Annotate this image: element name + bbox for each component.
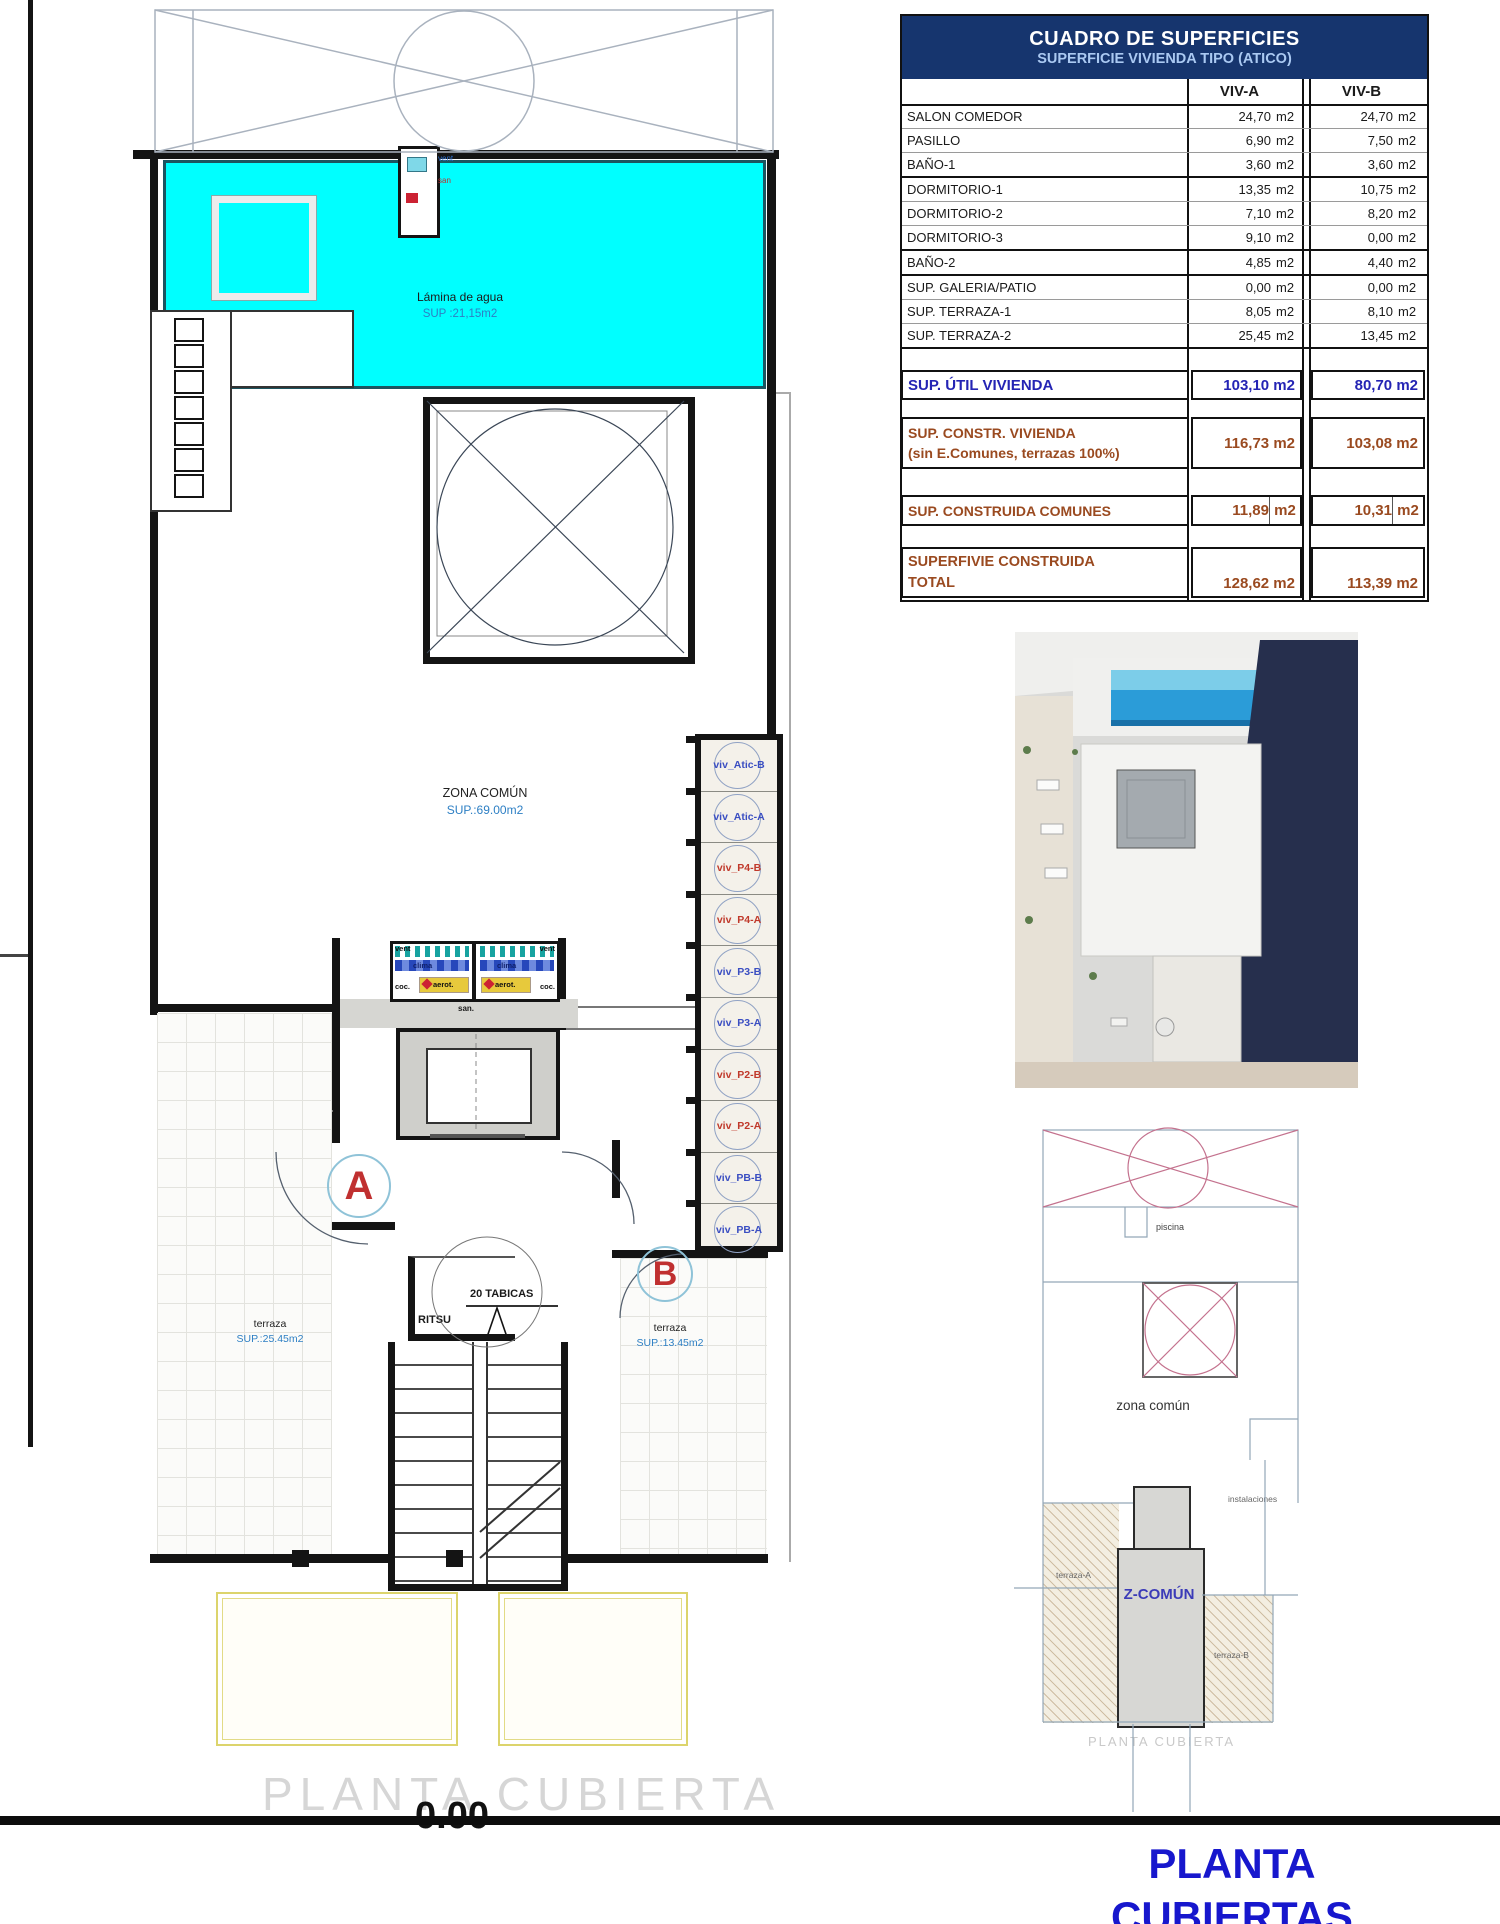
comunes-value-b: 10,31 [1313, 502, 1392, 519]
table-row-value-a: 0,00m2 [1187, 280, 1302, 295]
table-row-value-a: 4,85m2 [1187, 255, 1302, 270]
stair-stringer [472, 1342, 488, 1584]
constr-label-cell: SUP. CONSTR. VIVIENDA (sin E.Comunes, te… [901, 417, 1189, 469]
key-instalaciones-label: instalaciones [1228, 1494, 1277, 1505]
table-row: DORMITORIO-27,10m28,20m2 [902, 202, 1427, 226]
balcony-right [498, 1592, 688, 1746]
table-row-value-b: 13,45m2 [1309, 328, 1424, 343]
ritsu-label: RITSU [418, 1314, 451, 1328]
marker-a: A [327, 1154, 391, 1218]
louver [174, 422, 204, 446]
tabicas-label: 20 TABICAS [470, 1288, 533, 1302]
cell-unit: m2 [1271, 304, 1302, 319]
cell-number: 0,00 [1309, 230, 1393, 245]
louver [174, 396, 204, 420]
drawing-sheet: vent san Lámina de agua SUP :21,15m2 ZON… [0, 0, 1500, 1924]
balcony-left [216, 1592, 458, 1746]
util-value-b: 80,70 m2 [1311, 370, 1425, 400]
comunes-value-b-cell: 10,31 m2 [1311, 495, 1425, 526]
elevator-door [430, 1134, 525, 1138]
riser-stack: viv_Atic-Bviv_Atic-Aviv_P4-Bviv_P4-Aviv_… [695, 734, 783, 1252]
column-viv-b: VIV-B [1304, 79, 1419, 104]
wall-segment [612, 1140, 620, 1198]
comunes-unit-b: m2 [1392, 497, 1423, 524]
riser-cell: viv_P2-B [701, 1049, 777, 1101]
riser-label: viv_P3-A [701, 1017, 777, 1029]
table-row-value-b: 10,75m2 [1309, 182, 1424, 197]
table-row-label: BAÑO-2 [902, 255, 1187, 270]
table-row-value-b: 24,70m2 [1309, 109, 1424, 124]
table-row-value-b: 7,50m2 [1309, 133, 1424, 148]
louver [174, 318, 204, 342]
riser-label: viv_P2-A [701, 1120, 777, 1132]
terraza-b-label: terraza [600, 1322, 740, 1335]
cell-unit: m2 [1393, 109, 1424, 124]
table-row-label: SUP. GALERIA/PATIO [902, 280, 1187, 295]
terraza-b-sup: SUP.:13.45m2 [600, 1337, 740, 1350]
cell-unit: m2 [1393, 304, 1424, 319]
key-zona-label: zona común [1095, 1398, 1211, 1415]
wall-segment [332, 938, 340, 1143]
riser-cell: viv_Atic-A [701, 791, 777, 843]
riser-cell: viv_P3-A [701, 997, 777, 1049]
clima-hatch [480, 960, 554, 971]
total-label-cell: SUPERFIVIE CONSTRUIDA TOTAL [901, 547, 1189, 598]
table-row-label: DORMITORIO-2 [902, 206, 1187, 221]
louver [174, 474, 204, 498]
table-row-label: SALON COMEDOR [902, 109, 1187, 124]
cell-number: 3,60 [1309, 157, 1393, 172]
cell-number: 13,45 [1309, 328, 1393, 343]
table-row-value-a: 7,10m2 [1187, 206, 1302, 221]
cell-unit: m2 [1271, 182, 1302, 197]
aerot-left-label: aerot. [433, 980, 453, 989]
cell-number: 24,70 [1187, 109, 1271, 124]
table-row-value-b: 4,40m2 [1309, 255, 1424, 270]
riser-cell: viv_P3-B [701, 945, 777, 997]
coc-left-label: coc. [395, 982, 410, 991]
wall-segment [560, 1554, 768, 1563]
cell-unit: m2 [1393, 328, 1424, 343]
riser-label: viv_P2-B [701, 1069, 777, 1081]
post [446, 1550, 463, 1567]
boundary-line [776, 392, 791, 394]
cell-number: 9,10 [1187, 230, 1271, 245]
coc-right-label: coc. [540, 982, 555, 991]
util-label-cell: SUP. ÚTIL VIVIENDA [901, 370, 1189, 400]
total-value-a: 128,62 m2 [1191, 547, 1302, 598]
vent-icon [407, 157, 427, 172]
table-column-header: VIV-A VIV-B [902, 79, 1427, 106]
cell-unit: m2 [1393, 206, 1424, 221]
table-row-value-b: 3,60m2 [1309, 157, 1424, 172]
table-row-value-a: 13,35m2 [1187, 182, 1302, 197]
services-box: vent vent clima clima coc. coc. aerot. a… [390, 941, 560, 1002]
util-value-a: 103,10 m2 [1191, 370, 1302, 400]
riser-cell: viv_P2-A [701, 1100, 777, 1152]
cell-unit: m2 [1393, 133, 1424, 148]
wall-segment [767, 150, 776, 742]
louver [174, 370, 204, 394]
louver [174, 344, 204, 368]
table-row: DORMITORIO-113,35m210,75m2 [902, 178, 1427, 202]
util-label: SUP. ÚTIL VIVIENDA [908, 377, 1053, 394]
pool-steps [230, 310, 354, 388]
key-plan-caption: PLANTA CUBIERTA [1088, 1734, 1235, 1750]
comunes-value-a-cell: 11,89 m2 [1191, 495, 1302, 526]
zona-comun-label: ZONA COMÚN [395, 786, 575, 802]
clima-left-label: clima [413, 961, 432, 970]
table-row: SALON COMEDOR24,70m224,70m2 [902, 105, 1427, 129]
table-row-label: PASILLO [902, 133, 1187, 148]
thin-partition [566, 1028, 696, 1030]
table-rows: SALON COMEDOR24,70m224,70m2PASILLO6,90m2… [902, 105, 1427, 350]
cell-number: 6,90 [1187, 133, 1271, 148]
riser-label: viv_Atic-B [701, 759, 777, 771]
cell-number: 25,45 [1187, 328, 1271, 343]
cell-number: 3,60 [1187, 157, 1271, 172]
key-tower-top [1133, 1486, 1191, 1552]
constr-label-1: SUP. CONSTR. VIVIENDA [908, 423, 1187, 443]
table-row-label: DORMITORIO-3 [902, 230, 1187, 245]
wall-segment [325, 1222, 395, 1230]
table-row-value-a: 3,60m2 [1187, 157, 1302, 172]
post [292, 1550, 309, 1567]
render-3d-image [1015, 632, 1358, 1088]
services-divider [472, 944, 476, 999]
pool-sup-label: SUP :21,15m2 [340, 307, 580, 321]
riser-vent-label: vent [438, 154, 453, 164]
wall-segment [150, 1004, 338, 1012]
boundary-line [789, 392, 791, 1562]
table-row-value-a: 24,70m2 [1187, 109, 1302, 124]
render-3d [1015, 632, 1358, 1088]
riser-label: viv_PB-B [701, 1172, 777, 1184]
plan-caption: PLANTA CUBIERTA [262, 1766, 781, 1824]
cell-unit: m2 [1271, 109, 1302, 124]
terrace-a-floor [157, 1013, 332, 1554]
riser-cell: viv_PB-A [701, 1203, 777, 1255]
terraza-a-sup: SUP.:25.45m2 [195, 1333, 345, 1346]
wall-segment [150, 150, 158, 1015]
cell-unit: m2 [1393, 182, 1424, 197]
thin-partition [566, 1006, 696, 1008]
key-plan: piscina zona común instalaciones terraza… [1000, 1120, 1360, 1820]
clima-right-label: clima [497, 961, 516, 970]
main-floor-plan: vent san Lámina de agua SUP :21,15m2 ZON… [0, 0, 800, 1820]
cell-number: 4,85 [1187, 255, 1271, 270]
cell-unit: m2 [1393, 230, 1424, 245]
table-row-value-a: 25,45m2 [1187, 328, 1302, 343]
key-tower-main [1117, 1548, 1205, 1728]
table-header: CUADRO DE SUPERFICIES SUPERFICIE VIVIEND… [902, 16, 1427, 79]
table-row: PASILLO6,90m27,50m2 [902, 129, 1427, 153]
table-row-label: SUP. TERRAZA-1 [902, 304, 1187, 319]
cell-unit: m2 [1271, 328, 1302, 343]
cell-unit: m2 [1271, 157, 1302, 172]
riser-san-label: san [438, 176, 451, 186]
key-terraza-a-hatch [1043, 1503, 1119, 1723]
table-row-label: BAÑO-1 [902, 157, 1187, 172]
total-label-2: TOTAL [908, 573, 1187, 594]
san-icon [406, 193, 418, 203]
key-terraza-b-label: terraza-B [1214, 1650, 1249, 1661]
cell-unit: m2 [1271, 280, 1302, 295]
key-piscina-label: piscina [1120, 1222, 1220, 1233]
wall-segment [150, 1554, 390, 1563]
riser-label: viv_P3-B [701, 966, 777, 978]
table-row-value-b: 0,00m2 [1309, 280, 1424, 295]
table-row-value-a: 6,90m2 [1187, 133, 1302, 148]
table-row: SUP. TERRAZA-225,45m213,45m2 [902, 324, 1427, 349]
key-terraza-a-label: terraza-A [1056, 1570, 1091, 1581]
vent-left-label: vent [395, 944, 410, 953]
total-label-1: SUPERFIVIE CONSTRUIDA [908, 552, 1187, 573]
riser-cell: viv_P4-B [701, 842, 777, 894]
table-row-value-a: 9,10m2 [1187, 230, 1302, 245]
cell-unit: m2 [1271, 133, 1302, 148]
cell-number: 7,50 [1309, 133, 1393, 148]
table-row-value-b: 0,00m2 [1309, 230, 1424, 245]
surfaces-table: CUADRO DE SUPERFICIES SUPERFICIE VIVIEND… [900, 14, 1429, 602]
cell-number: 10,75 [1309, 182, 1393, 197]
table-row: BAÑO-24,85m24,40m2 [902, 251, 1427, 276]
riser-cell: viv_Atic-B [701, 740, 777, 791]
terrace-b-floor [620, 1258, 767, 1554]
table-row: SUP. GALERIA/PATIO0,00m20,00m2 [902, 276, 1427, 300]
constr-label-2: (sin E.Comunes, terrazas 100%) [908, 443, 1187, 463]
column-viv-a: VIV-A [1182, 79, 1297, 104]
riser-shaft [398, 146, 440, 238]
table-row: DORMITORIO-39,10m20,00m2 [902, 226, 1427, 251]
cell-number: 0,00 [1309, 280, 1393, 295]
san-label: san. [458, 1004, 474, 1014]
vent-right-label: vent [540, 944, 555, 953]
table-row-value-a: 8,05m2 [1187, 304, 1302, 319]
terraza-a-label: terraza [195, 1318, 345, 1331]
pool-inner-platform [212, 196, 316, 300]
sheet-bottom-rule [0, 1816, 1500, 1825]
cell-unit: m2 [1393, 280, 1424, 295]
cell-unit: m2 [1393, 157, 1424, 172]
table-row: SUP. TERRAZA-18,05m28,10m2 [902, 300, 1427, 324]
cell-unit: m2 [1271, 206, 1302, 221]
table-row-value-b: 8,20m2 [1309, 206, 1424, 221]
plant-room [150, 310, 232, 512]
riser-cell: viv_PB-B [701, 1152, 777, 1204]
constr-value-a: 116,73 m2 [1191, 417, 1302, 469]
skylight-shaft [423, 397, 695, 664]
table-row: BAÑO-13,60m23,60m2 [902, 153, 1427, 178]
table-row-label: DORMITORIO-1 [902, 182, 1187, 197]
table-subtitle: SUPERFICIE VIVIENDA TIPO (ATICO) [1037, 51, 1292, 67]
riser-label: viv_PB-A [701, 1224, 777, 1236]
marker-b: B [637, 1246, 693, 1302]
table-row-value-b: 8,10m2 [1309, 304, 1424, 319]
cell-number: 7,10 [1187, 206, 1271, 221]
cell-number: 24,70 [1309, 109, 1393, 124]
cell-unit: m2 [1271, 230, 1302, 245]
cell-number: 8,20 [1309, 206, 1393, 221]
sheet-title: PLANTA CUBIERTAS [1024, 1838, 1440, 1924]
riser-label: viv_P4-A [701, 914, 777, 926]
pool-label: Lámina de agua [340, 290, 580, 305]
wall-segment [133, 150, 779, 159]
riser-label: viv_Atic-A [701, 811, 777, 823]
riser-cell: viv_P4-A [701, 894, 777, 946]
aerot-right-label: aerot. [495, 980, 515, 989]
cell-number: 4,40 [1309, 255, 1393, 270]
table-row-label: SUP. TERRAZA-2 [902, 328, 1187, 343]
key-z-comun-label: Z-COMÚN [1112, 1586, 1206, 1605]
riser-label: viv_P4-B [701, 862, 777, 874]
louver [174, 448, 204, 472]
elevator-shaft [396, 1028, 560, 1140]
table-title: CUADRO DE SUPERFICIES [1029, 28, 1300, 51]
elevator-car [426, 1048, 532, 1124]
total-value-b: 113,39 m2 [1311, 547, 1425, 598]
cell-unit: m2 [1271, 255, 1302, 270]
zona-comun-sup: SUP.:69.00m2 [395, 803, 575, 818]
comunes-label-cell: SUP. CONSTRUIDA COMUNES [901, 495, 1189, 526]
cell-number: 13,35 [1187, 182, 1271, 197]
comunes-label: SUP. CONSTRUIDA COMUNES [908, 503, 1111, 519]
constr-value-b: 103,08 m2 [1311, 417, 1425, 469]
comunes-unit-a: m2 [1269, 497, 1300, 524]
empty-header-cell [902, 79, 1182, 104]
cell-number: 8,10 [1309, 304, 1393, 319]
cell-number: 0,00 [1187, 280, 1271, 295]
cell-unit: m2 [1393, 255, 1424, 270]
cell-number: 8,05 [1187, 304, 1271, 319]
comunes-value-a: 11,89 [1193, 502, 1269, 519]
thin-partition [466, 1305, 558, 1307]
